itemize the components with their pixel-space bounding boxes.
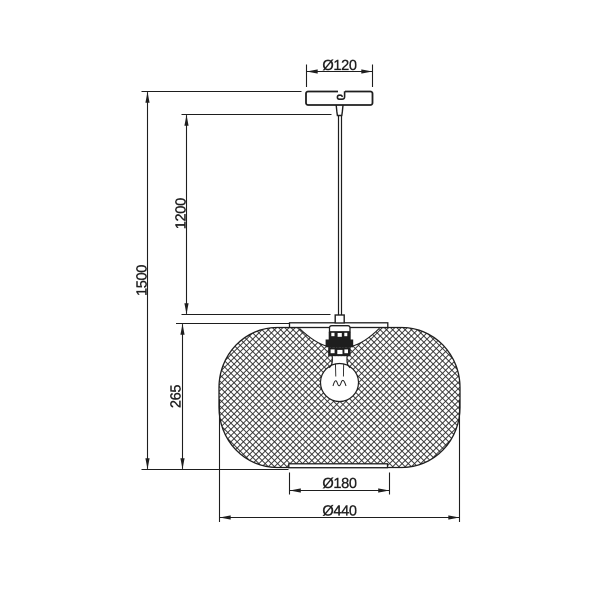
svg-text:265: 265 <box>169 385 185 409</box>
svg-text:Ø440: Ø440 <box>322 504 357 520</box>
svg-text:1200: 1200 <box>173 198 189 229</box>
svg-text:1500: 1500 <box>134 265 150 296</box>
svg-text:Ø180: Ø180 <box>322 476 357 492</box>
svg-text:Ø120: Ø120 <box>322 58 357 74</box>
